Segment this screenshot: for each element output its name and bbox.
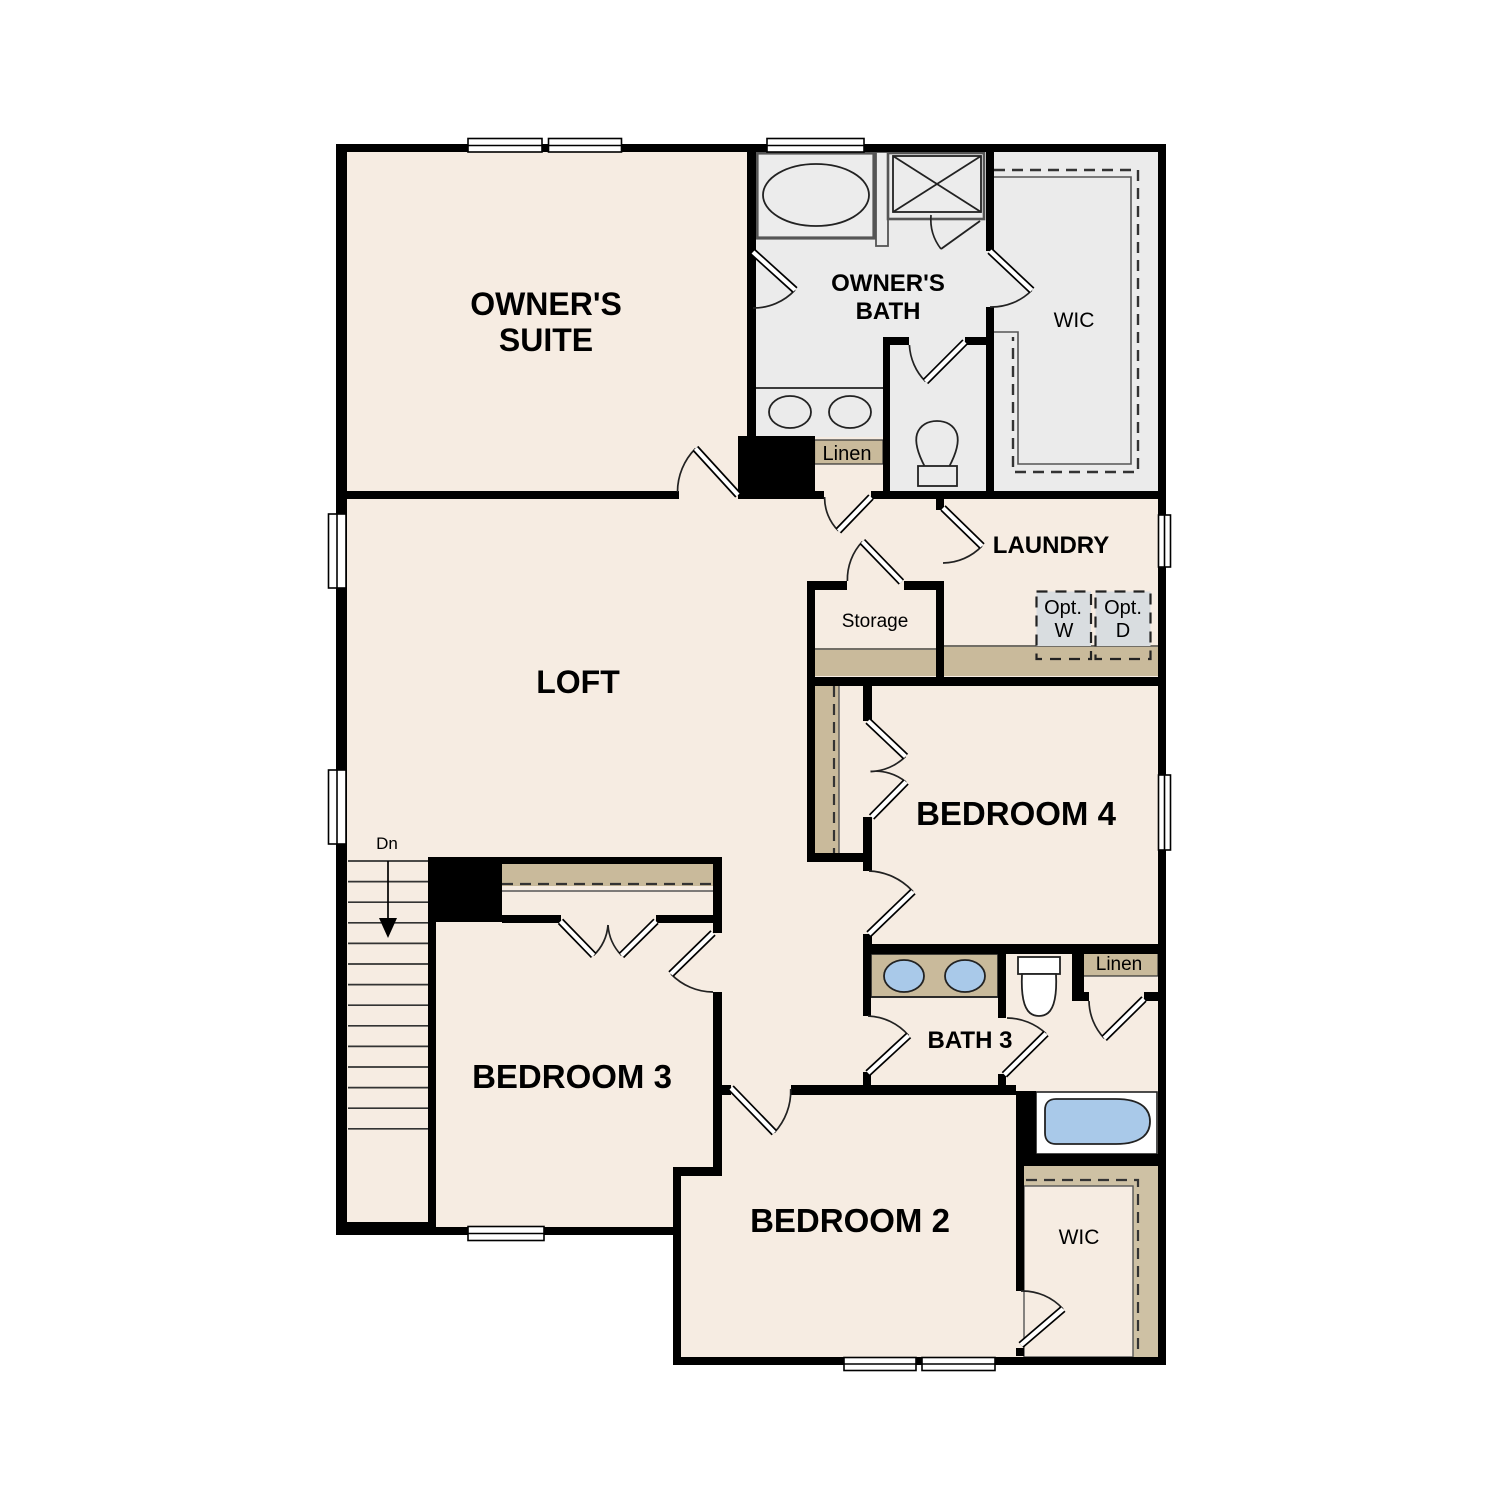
svg-text:Opt.: Opt. [1044,597,1082,619]
svg-text:SUITE: SUITE [499,322,593,358]
svg-text:D: D [1116,620,1130,642]
svg-text:W: W [1055,620,1074,642]
svg-text:LAUNDRY: LAUNDRY [993,532,1109,559]
svg-text:WIC: WIC [1054,309,1095,332]
svg-text:BEDROOM 4: BEDROOM 4 [916,795,1117,832]
svg-text:LOFT: LOFT [536,664,620,700]
svg-text:BEDROOM 2: BEDROOM 2 [750,1202,950,1239]
svg-text:BEDROOM 3: BEDROOM 3 [472,1058,672,1095]
svg-text:Linen: Linen [823,443,872,465]
svg-text:WIC: WIC [1059,1226,1100,1249]
svg-text:Storage: Storage [842,611,909,632]
svg-text:Linen: Linen [1096,954,1143,975]
svg-text:OWNER'S: OWNER'S [831,270,945,297]
svg-text:Dn: Dn [376,834,398,853]
svg-text:OWNER'S: OWNER'S [470,286,622,322]
svg-text:BATH 3: BATH 3 [928,1027,1013,1054]
svg-text:BATH: BATH [856,298,921,325]
svg-text:Opt.: Opt. [1104,597,1142,619]
